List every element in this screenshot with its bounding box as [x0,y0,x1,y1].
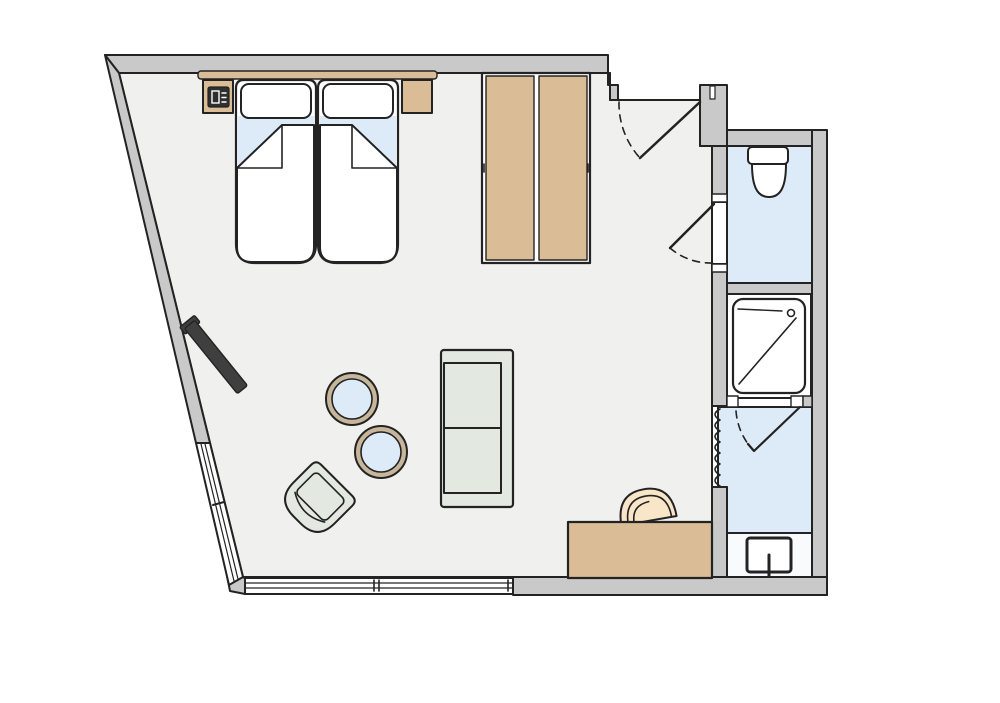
coffee-table-2 [355,426,407,478]
bathroom-floor [718,407,812,533]
toilet-bowl [752,164,786,197]
twin-bed-left [236,80,316,263]
bathroom-partition-wall [712,487,727,578]
shower-wall-filler [803,396,812,407]
shower-door-post-right [791,396,803,407]
coffee-table-2-top [361,432,401,472]
wc-door-stub-bottom [712,264,727,272]
shower-room [727,294,812,407]
bottom-wall [513,577,827,595]
entry-jamb-notch [710,86,715,99]
wc-door-stub-top [712,194,727,202]
floor-plan-drawing [0,0,1000,703]
wardrobe [482,73,590,263]
bedside-phone [208,87,229,107]
washbasin [747,538,791,576]
shower-drain [788,310,795,317]
shower-door-post-left [727,396,738,407]
desk [568,522,712,578]
sofa [441,350,513,507]
bed-left-pillow [241,84,311,118]
twin-bed-right [318,80,398,263]
nightstand-right [402,80,432,113]
headboard-shelf [198,71,437,79]
wardrobe-door-right [539,76,587,260]
wc-partition-wall-lower [712,264,727,406]
wc-top-wall [727,130,813,146]
coffee-table-1-top [332,379,372,419]
coffee-table-1 [326,373,378,425]
right-outer-wall [812,130,827,595]
toilet-tank [748,147,788,164]
bed-right-pillow [323,84,393,118]
wardrobe-door-left [486,76,534,260]
floor-plan-canvas [0,0,1000,703]
